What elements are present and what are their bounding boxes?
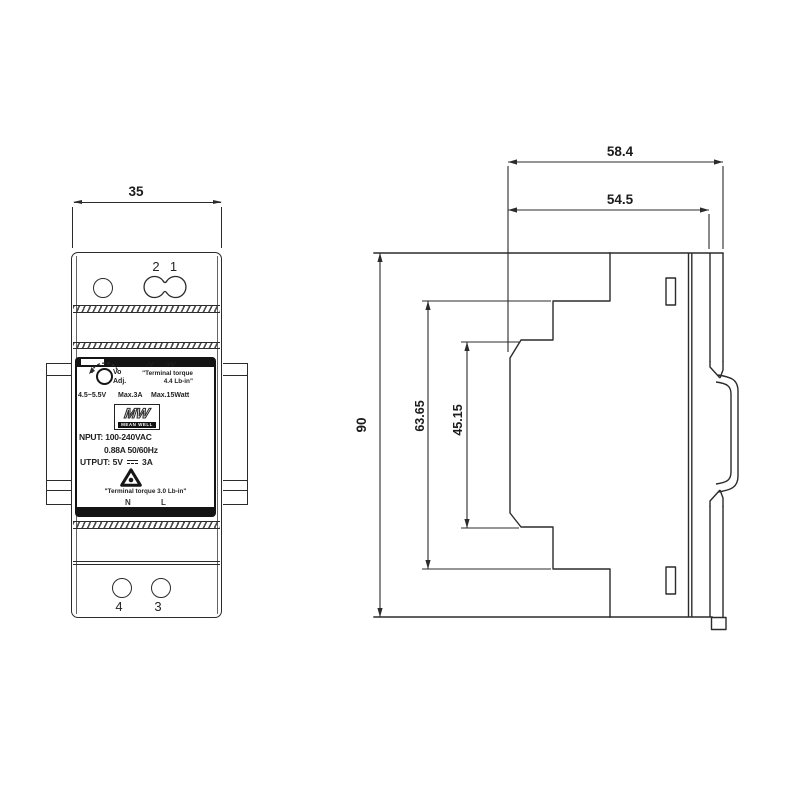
meanwell-logo-wordmark: MEAN WELL	[118, 422, 156, 429]
neg-v-label: -V	[146, 360, 154, 369]
joint-band-lower	[73, 521, 221, 529]
terminal-4-label: 4	[109, 599, 129, 614]
dim-width-ext-left	[72, 207, 73, 248]
terminal-1-label: 1	[164, 259, 184, 274]
bottom-cover-hole-3	[151, 578, 171, 598]
isolation-triangle-icon	[119, 467, 143, 488]
meanwell-logo: MW MEAN WELL	[114, 404, 160, 430]
terminal-l-label: L	[161, 498, 166, 507]
din-rail-clip	[710, 361, 738, 630]
din-rail-left-end	[46, 363, 72, 505]
adj-label: Adj.	[113, 378, 126, 385]
din-rail-right-end	[223, 363, 249, 505]
nameplate: Vo Adj. -V +V "Terminal torque 4.4 Lb-in…	[75, 357, 216, 517]
dim-height-label: 90	[354, 417, 369, 432]
dim-width-arrow-right	[213, 200, 222, 204]
bottom-cover-hole-4	[112, 578, 132, 598]
terminal-3-label: 3	[148, 599, 168, 614]
drawing-canvas: 35 2 1 4 3 Vo Adj. -V +V "	[0, 0, 800, 800]
side-dimension-lines	[380, 162, 723, 617]
max-current-label: Max.3A	[118, 392, 143, 399]
vo-adjust-potentiometer-icon	[96, 368, 113, 385]
dim-recess-height-label: 45.15	[451, 404, 465, 435]
top-cover-cable-hole	[142, 273, 188, 301]
joint-line-bottom	[73, 561, 221, 565]
max-power-label: Max.15Watt	[151, 392, 189, 399]
meanwell-logo-letters: MW	[114, 405, 160, 421]
dim-width-ext-right	[221, 207, 222, 248]
dc-voltage-icon	[127, 460, 138, 465]
dim-width-arrow-left	[73, 200, 82, 204]
voltage-range-label: 4.5~5.5V	[78, 392, 106, 399]
output-spec-prefix: UTPUT: 5V	[80, 457, 123, 467]
terminal-torque-top-line1: "Terminal torque	[133, 370, 193, 377]
output-spec-suffix: 3A	[142, 457, 153, 467]
dim-body-height-label: 63.65	[413, 400, 427, 431]
input-spec-line2: 0.88A 50/60Hz	[104, 445, 158, 455]
dimension-arrowheads	[377, 159, 723, 617]
terminal-torque-bottom-line: "Terminal torque 3.0 Lb-in"	[77, 488, 214, 495]
dim-case-depth-label: 54.5	[607, 192, 634, 207]
dim-total-depth-label: 58.4	[607, 144, 634, 159]
joint-band-top	[73, 305, 221, 313]
side-view-drawing: 58.4 54.5 90 63.65 45.15	[330, 135, 760, 645]
pos-v-label: +V	[166, 360, 175, 369]
vo-label: Vo	[113, 369, 121, 376]
top-cover-round-hole	[93, 278, 113, 298]
dim-width-label: 35	[106, 184, 166, 199]
terminal-torque-top-line2: 4.4 Lb-in"	[133, 378, 193, 385]
joint-band-upper	[73, 342, 221, 349]
nameplate-bottom-bar	[77, 507, 214, 515]
terminal-n-label: N	[125, 498, 131, 507]
dim-width-line	[74, 202, 221, 203]
output-spec-line: UTPUT: 5V 3A	[80, 457, 153, 467]
input-spec-line: NPUT: 100-240VAC	[79, 432, 152, 442]
